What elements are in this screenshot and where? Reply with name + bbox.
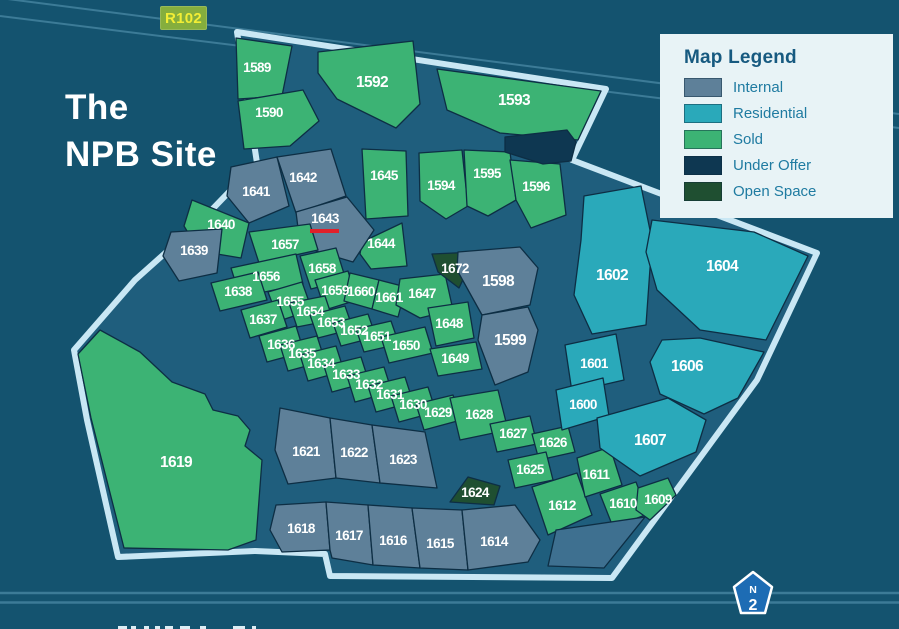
lot-label-1648: 1648 (435, 316, 464, 331)
lot-label-1615: 1615 (426, 536, 455, 551)
lot-label-1628: 1628 (465, 407, 494, 422)
lot-label-1640: 1640 (207, 217, 235, 232)
lot-label-1672: 1672 (441, 261, 469, 276)
legend-swatch-under-offer (684, 156, 722, 175)
lot-label-1616: 1616 (379, 533, 408, 548)
lot-label-1617: 1617 (335, 528, 363, 543)
lot-label-1644: 1644 (367, 236, 396, 251)
legend-swatch-residential (684, 104, 722, 123)
lot-label-1641: 1641 (242, 184, 271, 199)
lot-label-1623: 1623 (389, 452, 418, 467)
page-title: The NPB Site (65, 84, 217, 178)
legend-item-under-offer: Under Offer (684, 156, 883, 175)
lot-label-1590: 1590 (255, 105, 283, 120)
lot-label-1657: 1657 (271, 237, 299, 252)
legend-title: Map Legend (684, 47, 883, 69)
legend-swatch-open-space (684, 182, 722, 201)
lot-label-1658: 1658 (308, 261, 337, 276)
lot-label-1637: 1637 (249, 312, 277, 327)
lot-label-1649: 1649 (441, 351, 469, 366)
lot-label-1601: 1601 (580, 356, 609, 371)
lot-label-1612: 1612 (548, 498, 576, 513)
lot-label-1611: 1611 (583, 467, 611, 482)
lot-label-1643: 1643 (311, 211, 340, 226)
lot-label-1592: 1592 (356, 74, 388, 91)
legend-item-residential: Residential (684, 104, 883, 123)
lot-label-1661: 1661 (375, 290, 404, 305)
legend-item-sold: Sold (684, 130, 883, 149)
lot-label-1594: 1594 (427, 178, 456, 193)
n2-shield: N 2 (734, 572, 772, 614)
lot-label-1600: 1600 (569, 397, 597, 412)
lot-label-1606: 1606 (671, 358, 704, 375)
legend-label-open-space: Open Space (733, 183, 816, 200)
lot-label-1604: 1604 (706, 258, 739, 275)
lot-label-1647: 1647 (408, 286, 436, 301)
r102-road-label: R102 (165, 10, 202, 27)
lot-label-1619: 1619 (160, 454, 193, 471)
lot-label-1638: 1638 (224, 284, 253, 299)
lot-label-1598: 1598 (482, 273, 515, 290)
page-title-line-2: NPB Site (65, 131, 217, 178)
lot-label-1609: 1609 (644, 492, 672, 507)
r102-road-badge: R102 (160, 6, 207, 30)
lot-label-1660: 1660 (347, 284, 375, 299)
lot-label-1651: 1651 (363, 329, 392, 344)
lot-label-1642: 1642 (289, 170, 317, 185)
lot-label-1610: 1610 (609, 496, 637, 511)
lot-label-1624: 1624 (461, 485, 490, 500)
lot-label-1607: 1607 (634, 432, 666, 449)
n2-shield-letter: N (749, 584, 757, 596)
lot-label-1602: 1602 (596, 267, 628, 284)
page-title-line-1: The (65, 84, 217, 131)
site-map-page: 1589159015921593159415951596164516441641… (0, 0, 899, 629)
legend-swatch-sold (684, 130, 722, 149)
legend-label-internal: Internal (733, 79, 783, 96)
lot-label-1645: 1645 (370, 168, 399, 183)
legend-label-under-offer: Under Offer (733, 157, 811, 174)
lot-label-1599: 1599 (494, 332, 527, 349)
legend-label-residential: Residential (733, 105, 807, 122)
lot-label-1589: 1589 (243, 60, 271, 75)
lot-label-1629: 1629 (424, 405, 452, 420)
lot-label-1626: 1626 (539, 435, 568, 450)
lot-label-1622: 1622 (340, 445, 368, 460)
lot-label-1656: 1656 (252, 269, 281, 284)
lot-label-1639: 1639 (180, 243, 208, 258)
lot-label-1627: 1627 (499, 426, 527, 441)
lot-label-1614: 1614 (480, 534, 509, 549)
highlight-underline-1643 (310, 229, 339, 233)
lot-1645[interactable] (362, 149, 408, 219)
lot-1602[interactable] (574, 186, 652, 334)
lot-label-1596: 1596 (522, 179, 551, 194)
legend-item-open-space: Open Space (684, 182, 883, 201)
lot-label-1595: 1595 (473, 166, 502, 181)
lot-label-1630: 1630 (399, 397, 427, 412)
lot-label-1618: 1618 (287, 521, 316, 536)
legend-label-sold: Sold (733, 131, 763, 148)
lot-label-1593: 1593 (498, 92, 531, 109)
legend-item-internal: Internal (684, 78, 883, 97)
lot-label-1625: 1625 (516, 462, 545, 477)
lot-label-1659: 1659 (321, 283, 349, 298)
lot-label-1621: 1621 (292, 444, 321, 459)
lot-label-1650: 1650 (392, 338, 420, 353)
map-legend: Map Legend Internal Residential Sold Und… (660, 34, 893, 218)
legend-swatch-internal (684, 78, 722, 97)
n2-shield-number: 2 (749, 597, 758, 614)
